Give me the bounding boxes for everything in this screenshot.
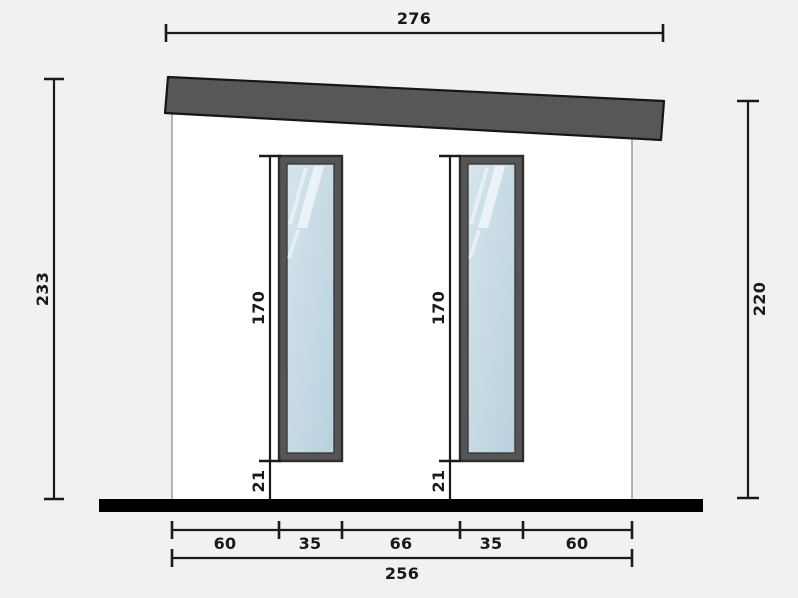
window-left xyxy=(279,156,342,461)
dim-label-total-width: 256 xyxy=(385,564,419,583)
dim-label-segment-5: 60 xyxy=(566,534,589,553)
wall xyxy=(172,110,632,500)
dim-label-window1-sill: 21 xyxy=(249,470,268,493)
dim-label-segment-1: 60 xyxy=(214,534,237,553)
dim-label-left-height: 233 xyxy=(33,272,52,306)
dim-label-segment-3: 66 xyxy=(390,534,413,553)
dim-label-window2-height: 170 xyxy=(429,291,448,325)
floor-line xyxy=(99,499,703,512)
dim-label-roof-width: 276 xyxy=(397,9,431,28)
dim-label-window1-height: 170 xyxy=(249,291,268,325)
elevation-drawing: 276 233 220 170 21 170 21 xyxy=(0,0,798,598)
drawing-canvas: 276 233 220 170 21 170 21 xyxy=(0,0,798,598)
dim-label-window2-sill: 21 xyxy=(429,470,448,493)
window-right xyxy=(460,156,523,461)
dim-label-segment-2: 35 xyxy=(299,534,322,553)
dim-label-right-height: 220 xyxy=(750,282,769,316)
dim-label-segment-4: 35 xyxy=(480,534,503,553)
